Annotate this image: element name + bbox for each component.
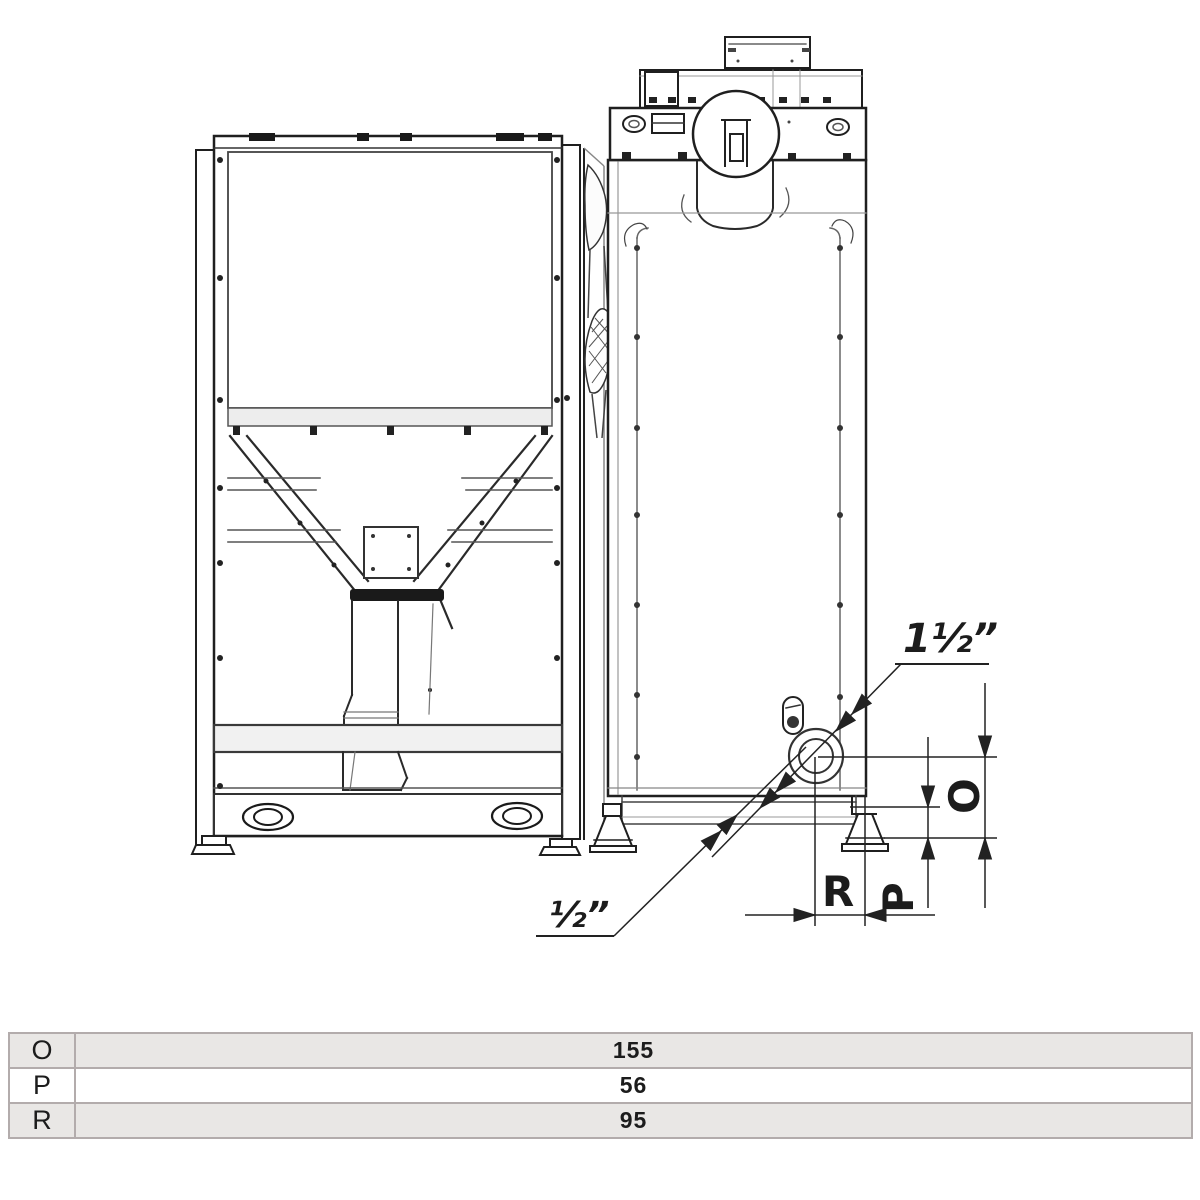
dim-value-r: 95 (75, 1103, 1192, 1138)
dim-label-o: O (940, 778, 989, 814)
hopper-crossbar (214, 725, 562, 752)
chimney-stub (725, 37, 810, 68)
hopper-right-post (562, 145, 580, 839)
boiler-dimension-sheet: 1½” ½” R P O O 155 P 56 R 95 (0, 0, 1200, 1200)
dim-value-o: 155 (75, 1033, 1192, 1068)
table-row-r: R 95 (9, 1103, 1192, 1138)
dim-value-p: 56 (75, 1068, 1192, 1103)
hopper-feet (192, 836, 580, 855)
table-row-p: P 56 (9, 1068, 1192, 1103)
dim-label-r: R (822, 867, 854, 916)
dim-param-o: O (9, 1033, 75, 1068)
table-row-o: O 155 (9, 1033, 1192, 1068)
hopper-divider-rail (228, 408, 552, 426)
dimension-table: O 155 P 56 R 95 (8, 1032, 1193, 1139)
drain-valve (783, 697, 803, 734)
hopper-upper-panel (228, 152, 552, 408)
hopper-left-post (196, 150, 214, 846)
panel-bolt-right (827, 119, 849, 135)
funnel-throat (350, 589, 444, 601)
boiler-front-foot (590, 804, 636, 852)
top-connection-size-label: 1½” (903, 616, 998, 662)
boiler-body (608, 160, 866, 796)
panel-bolt-left (623, 116, 645, 132)
dim-param-r: R (9, 1103, 75, 1138)
dim-param-p: P (9, 1068, 75, 1103)
pellet-hopper-front-view (192, 133, 580, 855)
dim-label-p: P (874, 882, 923, 913)
bottom-connection-size-label: ½” (549, 895, 609, 936)
boiler-side-view (590, 37, 888, 852)
boiler-plinth (622, 796, 856, 824)
boiler-dimension-drawing: 1½” ½” R P O (0, 0, 1200, 1010)
